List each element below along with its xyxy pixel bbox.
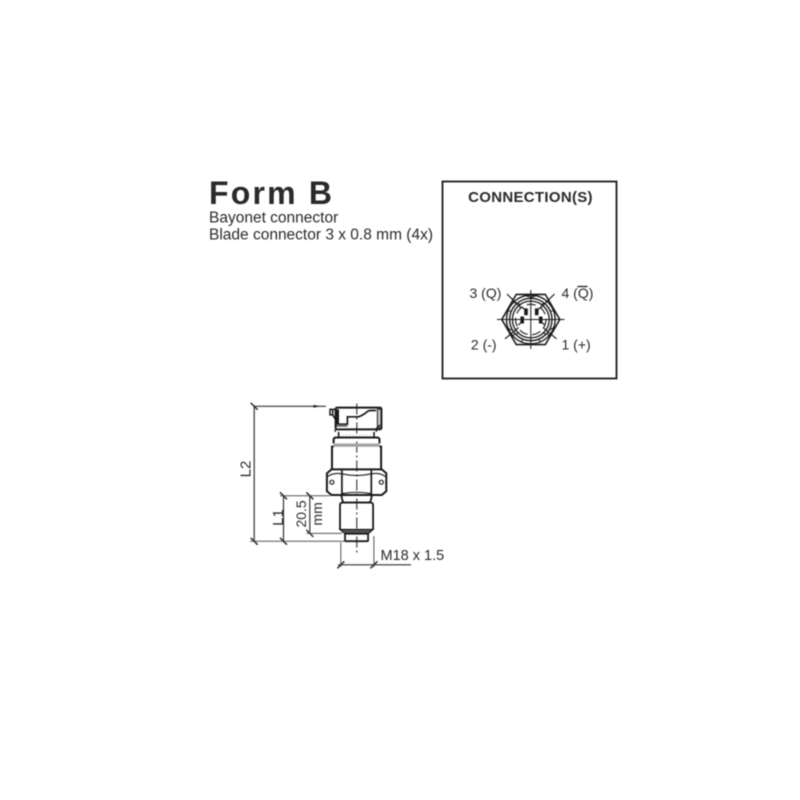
- svg-text:mm: mm: [309, 502, 325, 525]
- svg-text:1 (+): 1 (+): [562, 337, 591, 353]
- svg-text:M18 x 1.5: M18 x 1.5: [381, 548, 445, 564]
- svg-text:20.5: 20.5: [293, 500, 309, 527]
- svg-text:4 (Q): 4 (Q): [562, 285, 594, 301]
- svg-text:Form B: Form B: [209, 175, 334, 211]
- svg-text:2 (-): 2 (-): [471, 337, 497, 353]
- svg-text:3 (Q): 3 (Q): [470, 285, 502, 301]
- svg-text:Bayonet connector: Bayonet connector: [209, 210, 338, 227]
- svg-text:L1: L1: [270, 509, 287, 526]
- svg-text:L2: L2: [237, 461, 254, 478]
- svg-text:CONNECTION(S): CONNECTION(S): [468, 189, 593, 206]
- svg-text:Blade connector 3 x 0.8 mm (4x: Blade connector 3 x 0.8 mm (4x): [209, 227, 433, 244]
